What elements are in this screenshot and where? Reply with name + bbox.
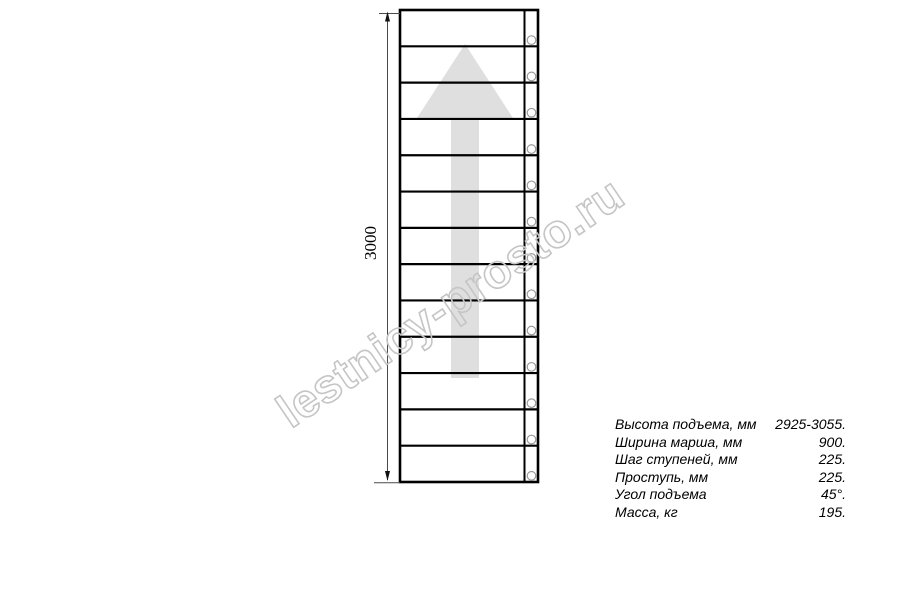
spec-label: Ширина марша, мм [615,434,742,452]
spec-row: Масса, кг 195. [615,504,846,522]
spec-label: Шаг ступеней, мм [615,451,738,469]
dimension-label: 3000 [361,226,381,260]
spec-row: Ширина марша, мм 900. [615,434,846,452]
spec-row: Проступь, мм 225. [615,469,846,487]
spec-label: Высота подъема, мм [615,416,757,434]
fastener-holes [527,36,536,480]
spec-value: 225. [819,451,846,469]
spec-value: 225. [819,469,846,487]
up-arrow-icon [417,44,513,378]
spec-label: Проступь, мм [615,469,708,487]
spec-value: 2925-3055. [775,416,846,434]
specs-table: Высота подъема, мм 2925-3055. Ширина мар… [615,416,846,521]
technical-drawing-page: lestnicy-prosto.ru 3000 Высота подъема, … [0,0,900,600]
spec-row: Угол подъема 45°. [615,486,846,504]
spec-value: 45°. [821,486,846,504]
spec-row: Высота подъема, мм 2925-3055. [615,416,846,434]
spec-label: Угол подъема [615,486,707,504]
spec-value: 900. [819,434,846,452]
spec-label: Масса, кг [615,504,678,522]
spec-row: Шаг ступеней, мм 225. [615,451,846,469]
spec-value: 195. [819,504,846,522]
